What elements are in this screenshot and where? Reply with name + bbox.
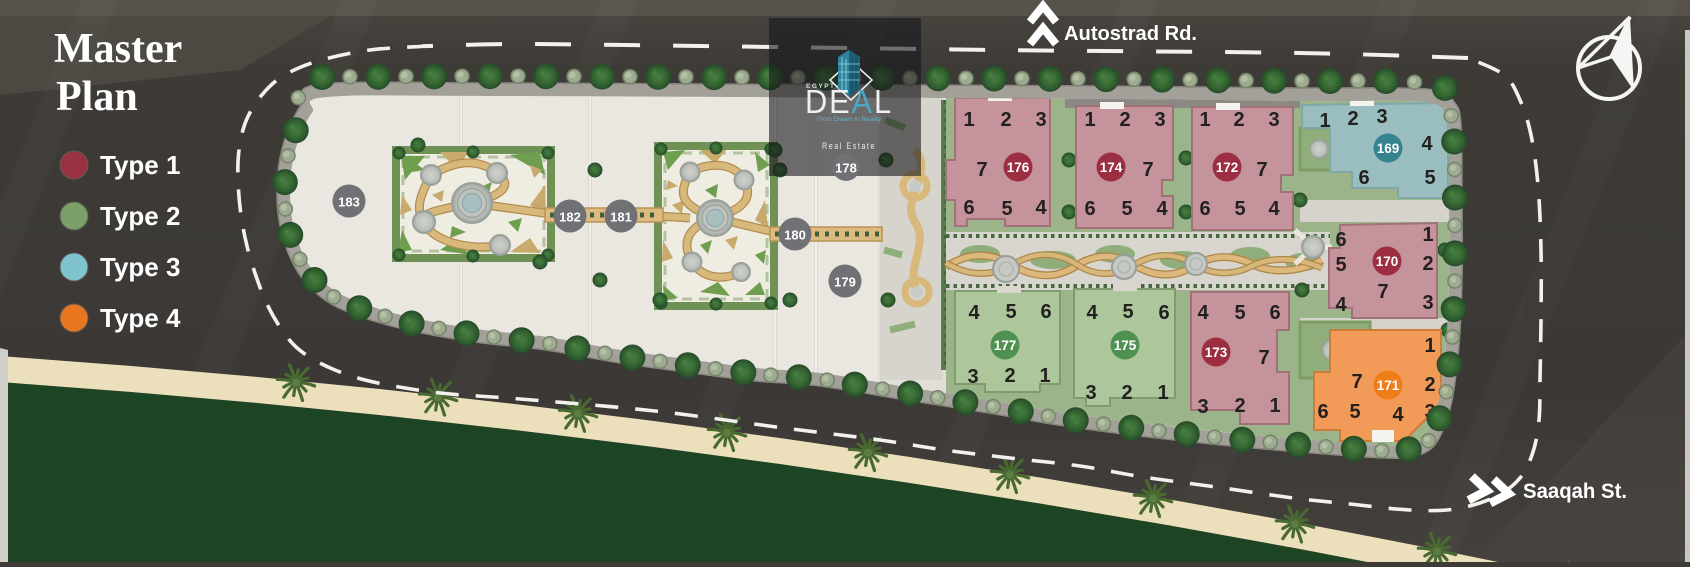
svg-text:180: 180 [784, 228, 806, 243]
svg-text:4: 4 [1268, 198, 1280, 220]
svg-text:1: 1 [1424, 335, 1435, 357]
svg-text:7: 7 [976, 159, 987, 181]
svg-text:DEAL: DEAL [805, 83, 893, 120]
svg-text:2: 2 [1121, 382, 1132, 404]
svg-text:182: 182 [559, 210, 581, 225]
svg-text:2: 2 [1004, 365, 1015, 387]
svg-text:3: 3 [967, 366, 978, 388]
svg-text:3: 3 [1422, 292, 1433, 314]
svg-text:7: 7 [1377, 281, 1388, 303]
svg-text:3: 3 [1197, 396, 1208, 418]
svg-text:173: 173 [1205, 345, 1228, 360]
svg-text:7: 7 [1142, 159, 1153, 181]
svg-text:1: 1 [1039, 365, 1050, 387]
svg-text:178: 178 [835, 161, 857, 176]
svg-text:Saaqah St.: Saaqah St. [1523, 480, 1627, 503]
svg-text:169: 169 [1377, 141, 1400, 156]
svg-text:6: 6 [1158, 302, 1169, 324]
svg-text:4: 4 [1035, 197, 1047, 219]
svg-text:4: 4 [1156, 198, 1168, 220]
svg-text:4: 4 [1197, 302, 1209, 324]
svg-text:1: 1 [1199, 109, 1210, 131]
svg-text:4: 4 [968, 302, 980, 324]
svg-text:Real Estate: Real Estate [822, 141, 876, 152]
svg-text:2: 2 [1233, 109, 1244, 131]
svg-text:5: 5 [1424, 167, 1435, 189]
svg-text:6: 6 [1084, 198, 1095, 220]
svg-text:181: 181 [610, 210, 632, 225]
svg-text:1: 1 [1157, 382, 1168, 404]
svg-text:1: 1 [963, 109, 974, 131]
svg-text:2: 2 [1422, 253, 1433, 275]
svg-text:Type 1: Type 1 [100, 150, 180, 180]
svg-text:5: 5 [1122, 301, 1133, 323]
svg-text:175: 175 [1114, 338, 1137, 353]
svg-text:6: 6 [1335, 229, 1346, 251]
svg-text:6: 6 [1040, 301, 1051, 323]
svg-text:2: 2 [1000, 109, 1011, 131]
svg-text:1: 1 [1319, 110, 1330, 132]
svg-text:172: 172 [1216, 160, 1239, 175]
svg-text:179: 179 [834, 275, 856, 290]
svg-text:2: 2 [1347, 108, 1358, 130]
svg-text:5: 5 [1121, 198, 1132, 220]
svg-text:4: 4 [1421, 133, 1433, 155]
svg-text:5: 5 [1005, 301, 1016, 323]
svg-text:6: 6 [963, 197, 974, 219]
svg-text:3: 3 [1154, 109, 1165, 131]
svg-text:6: 6 [1317, 401, 1328, 423]
svg-text:5: 5 [1335, 254, 1346, 276]
svg-text:4: 4 [1392, 404, 1404, 426]
svg-text:Master: Master [54, 26, 182, 72]
svg-text:Type 4: Type 4 [100, 303, 181, 333]
svg-text:5: 5 [1001, 198, 1012, 220]
svg-text:3: 3 [1085, 382, 1096, 404]
svg-text:2: 2 [1424, 374, 1435, 396]
svg-text:6: 6 [1199, 198, 1210, 220]
svg-text:177: 177 [994, 338, 1017, 353]
svg-text:1: 1 [1422, 224, 1433, 246]
svg-text:170: 170 [1376, 254, 1399, 269]
svg-text:7: 7 [1258, 347, 1269, 369]
svg-text:174: 174 [1100, 160, 1123, 175]
svg-text:183: 183 [338, 195, 360, 210]
svg-text:5: 5 [1234, 302, 1245, 324]
svg-text:Plan: Plan [56, 74, 138, 120]
svg-text:7: 7 [1256, 159, 1267, 181]
svg-text:Type 3: Type 3 [100, 252, 180, 282]
svg-text:6: 6 [1358, 167, 1369, 189]
svg-text:5: 5 [1234, 198, 1245, 220]
svg-text:Type 2: Type 2 [100, 201, 180, 231]
svg-text:5: 5 [1349, 401, 1360, 423]
svg-text:3: 3 [1035, 109, 1046, 131]
svg-text:From Dream to Reality: From Dream to Reality [817, 117, 881, 123]
svg-text:Autostrad Rd.: Autostrad Rd. [1064, 22, 1197, 45]
svg-text:4: 4 [1335, 294, 1347, 316]
svg-text:2: 2 [1119, 109, 1130, 131]
svg-text:176: 176 [1007, 160, 1030, 175]
svg-text:1: 1 [1084, 109, 1095, 131]
svg-text:171: 171 [1377, 378, 1400, 393]
svg-text:6: 6 [1269, 302, 1280, 324]
svg-text:7: 7 [1351, 371, 1362, 393]
svg-text:2: 2 [1234, 395, 1245, 417]
svg-text:3: 3 [1376, 106, 1387, 128]
svg-text:1: 1 [1269, 395, 1280, 417]
svg-text:3: 3 [1268, 109, 1279, 131]
svg-text:4: 4 [1086, 302, 1098, 324]
